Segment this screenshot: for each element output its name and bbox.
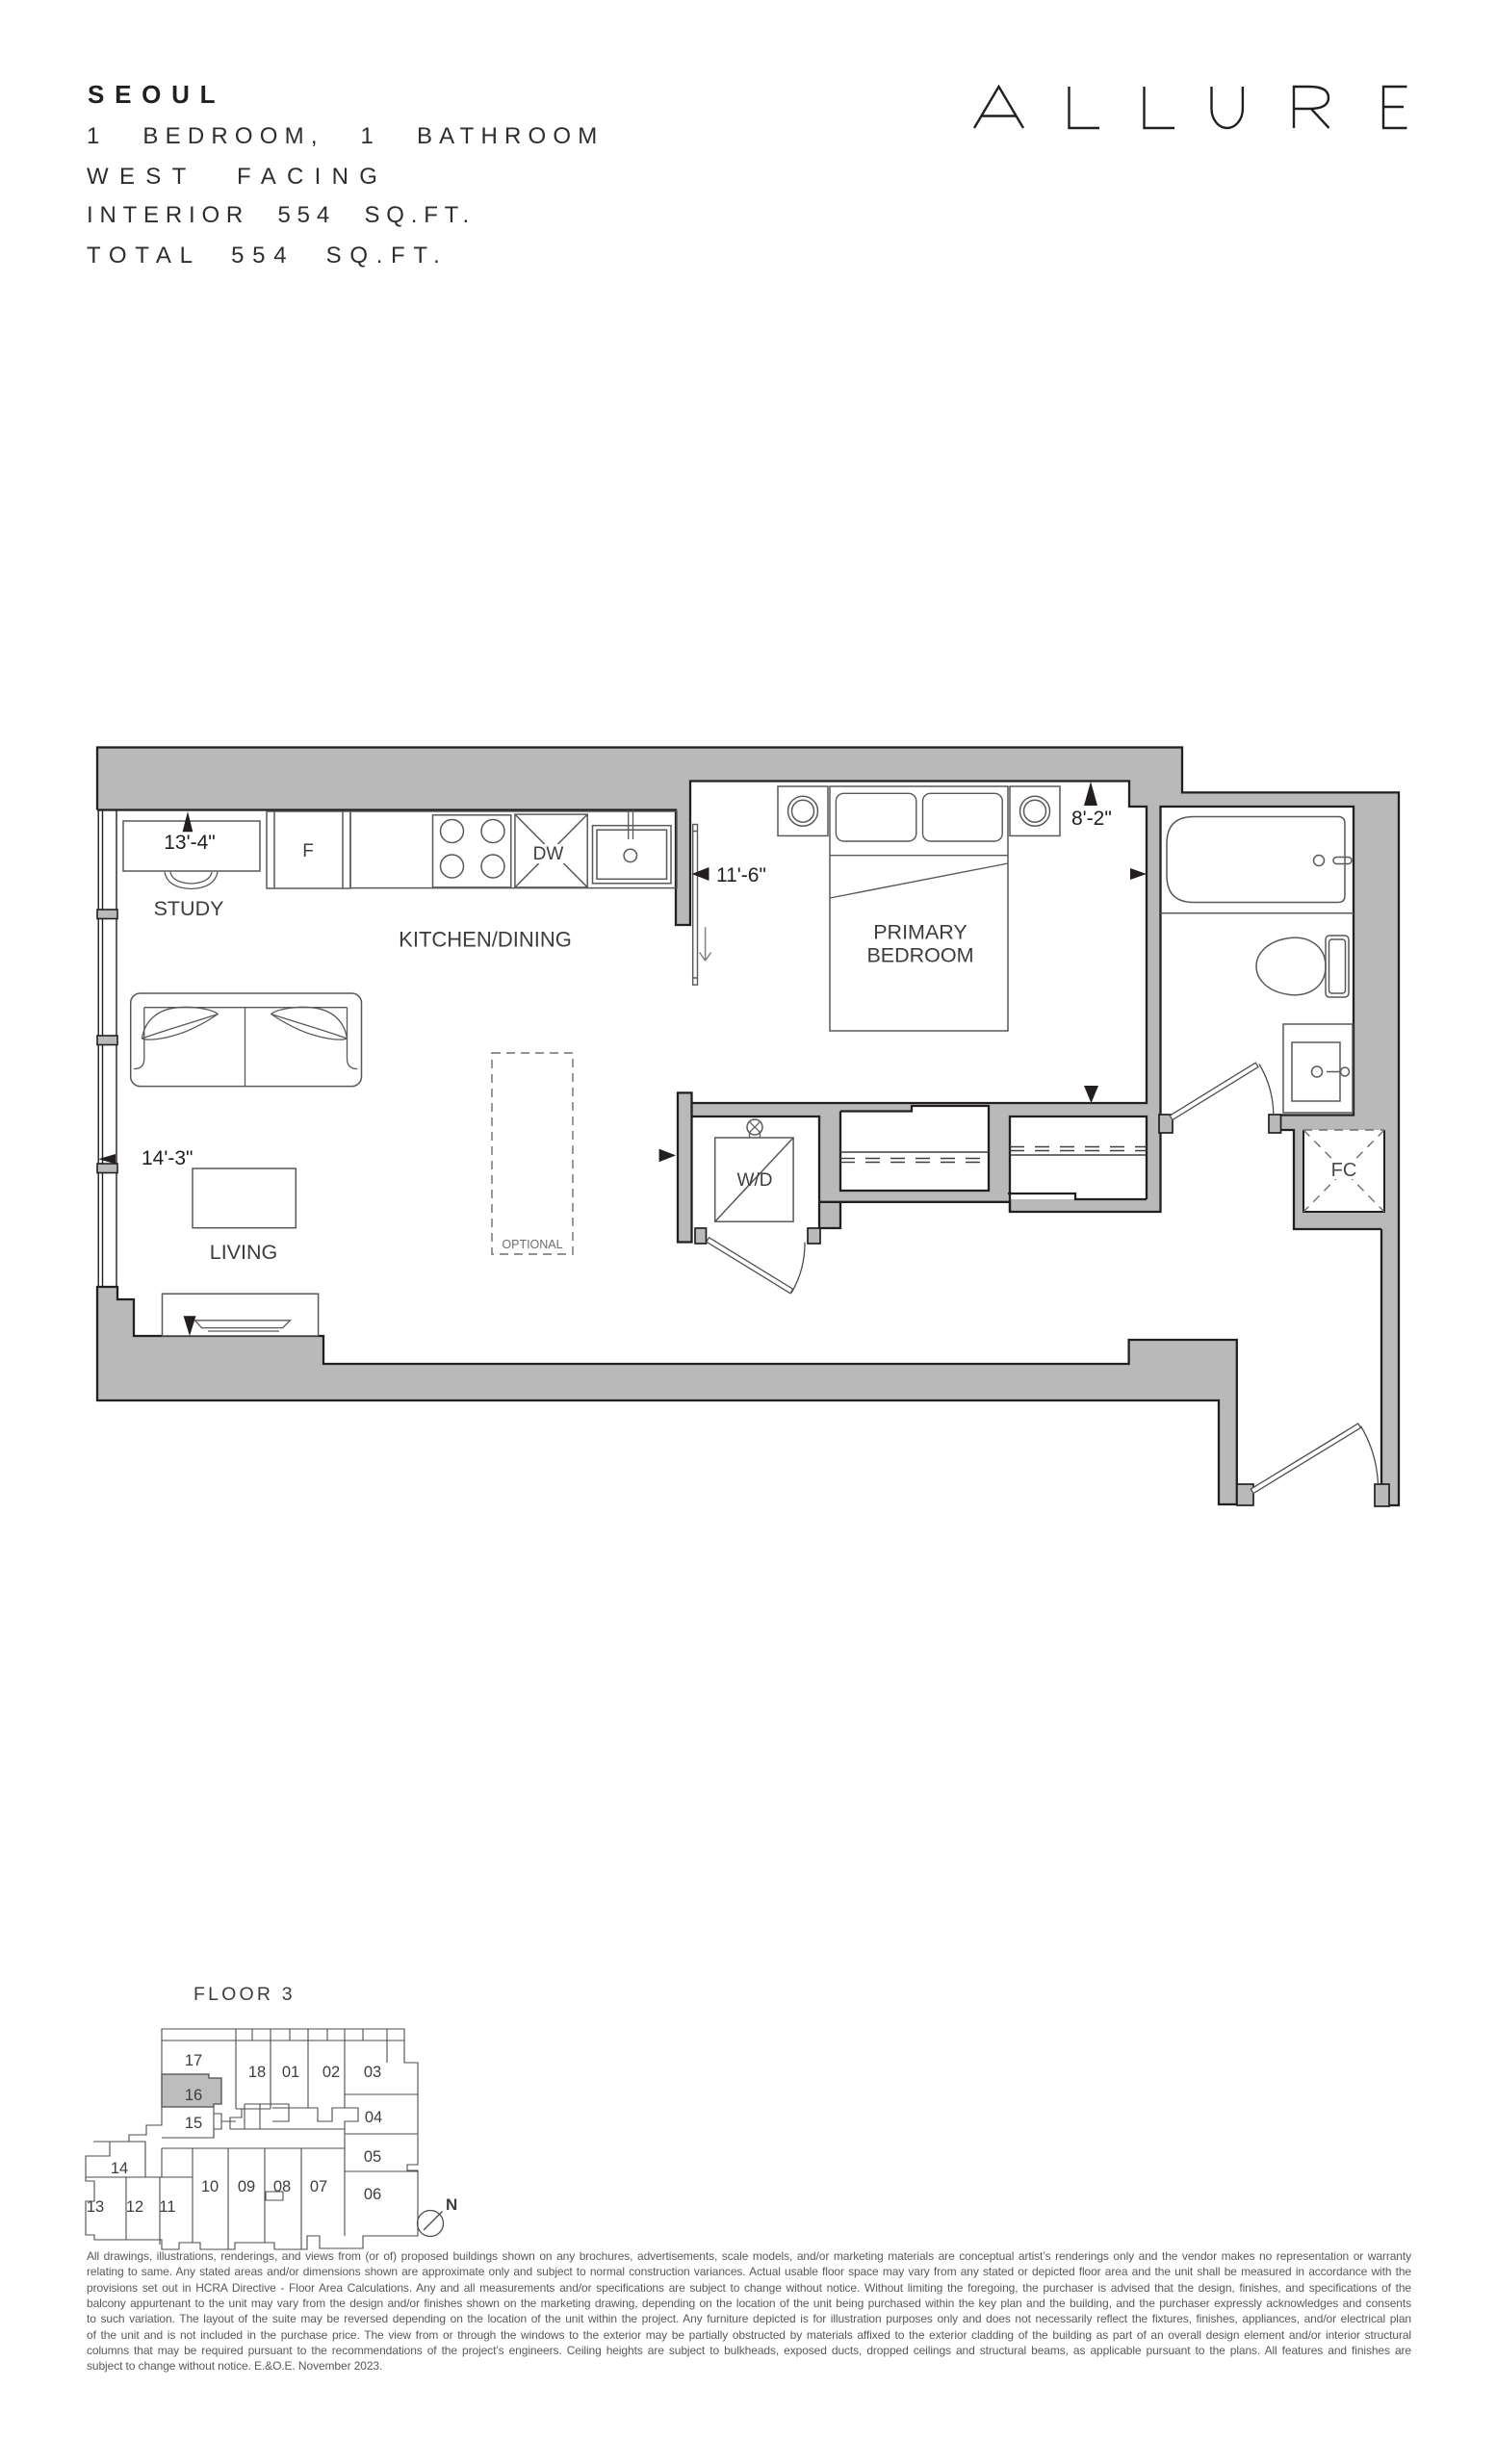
svg-text:FC: FC [1331, 1160, 1357, 1181]
svg-text:FLOOR 3: FLOOR 3 [193, 1984, 296, 2005]
svg-text:10: 10 [201, 2178, 219, 2195]
svg-text:11'-6": 11'-6" [716, 864, 766, 886]
svg-text:13: 13 [87, 2198, 104, 2216]
svg-text:PRIMARY: PRIMARY [873, 921, 967, 944]
svg-text:13'-4": 13'-4" [164, 832, 216, 854]
svg-text:18: 18 [248, 2064, 266, 2081]
svg-text:04: 04 [365, 2109, 382, 2126]
svg-text:W/D: W/D [737, 1170, 773, 1191]
svg-text:16: 16 [185, 2087, 202, 2104]
svg-text:03: 03 [364, 2064, 381, 2081]
svg-text:02: 02 [322, 2064, 340, 2081]
svg-text:08: 08 [273, 2178, 291, 2195]
svg-text:05: 05 [364, 2148, 381, 2166]
svg-text:07: 07 [310, 2178, 327, 2195]
svg-text:17: 17 [185, 2052, 202, 2069]
svg-text:F: F [302, 841, 314, 861]
svg-text:N: N [446, 2195, 457, 2214]
svg-text:15: 15 [185, 2115, 202, 2132]
svg-text:OPTIONAL: OPTIONAL [502, 1238, 562, 1251]
svg-text:12: 12 [126, 2198, 143, 2216]
svg-text:14: 14 [111, 2160, 128, 2177]
svg-text:14'-3": 14'-3" [142, 1147, 193, 1169]
svg-text:06: 06 [364, 2186, 381, 2203]
svg-text:BEDROOM: BEDROOM [866, 944, 973, 967]
svg-text:STUDY: STUDY [154, 897, 224, 920]
svg-text:01: 01 [282, 2064, 299, 2081]
svg-text:LIVING: LIVING [210, 1241, 278, 1264]
svg-text:8'-2": 8'-2" [1071, 808, 1112, 830]
svg-text:09: 09 [238, 2178, 255, 2195]
svg-text:KITCHEN/DINING: KITCHEN/DINING [399, 928, 572, 952]
svg-text:11: 11 [159, 2198, 175, 2216]
svg-text:DW: DW [533, 844, 564, 864]
